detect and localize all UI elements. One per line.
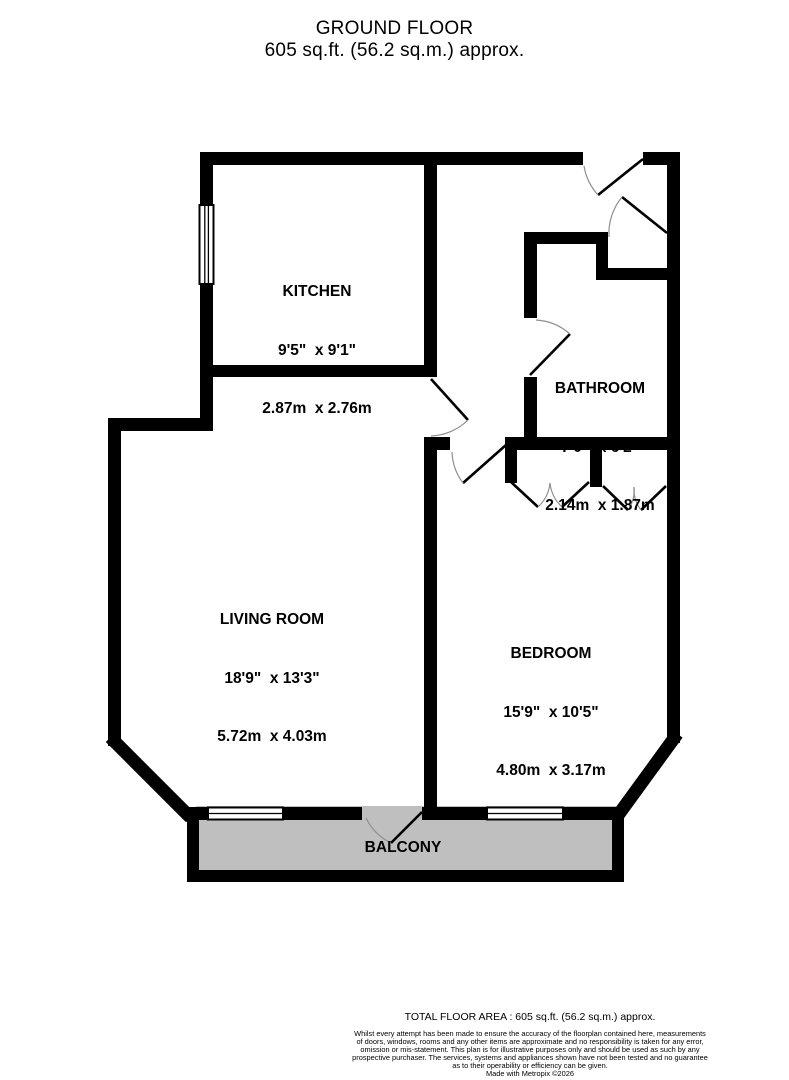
living-room-metric-dims: 5.72m x 4.03m xyxy=(217,727,326,747)
wall-bedroom-top-left-stub xyxy=(424,437,450,450)
wall-kitchen-left-lower xyxy=(200,283,213,431)
kitchen-label: KITCHEN 9'5" x 9'1" 2.87m x 2.76m xyxy=(262,243,371,458)
living-room-hall-door-leaf xyxy=(431,379,468,420)
kitchen-name: KITCHEN xyxy=(262,282,371,302)
bedroom-door-swing-arc xyxy=(452,452,463,483)
wall-wardrobe-stub-left xyxy=(505,437,517,483)
floorplan-canvas xyxy=(0,0,789,1080)
wall-living-bedroom-divider xyxy=(424,437,437,820)
living-room-imperial-dims: 18'9" x 13'3" xyxy=(217,669,326,689)
kitchen-metric-dims: 2.87m x 2.76m xyxy=(262,399,371,419)
bedroom-door xyxy=(452,445,506,483)
wall-balcony-right xyxy=(612,812,624,882)
kitchen-window xyxy=(200,205,214,284)
wall-bathroom-left-upper xyxy=(524,232,537,318)
bedroom-metric-dims: 4.80m x 3.17m xyxy=(496,761,605,781)
entrance-door-swing-arc xyxy=(584,166,598,195)
total-floor-area: TOTAL FLOOR AREA : 605 sq.ft. (56.2 sq.m… xyxy=(290,1011,770,1023)
wall-left xyxy=(108,418,121,746)
wall-right xyxy=(667,152,680,743)
bedroom-name: BEDROOM xyxy=(496,644,605,664)
hall-cupboard-door xyxy=(609,197,667,237)
wall-bedroom-bottom-left xyxy=(422,807,487,820)
living-room-hall-door-swing-arc xyxy=(431,420,468,436)
wall-bathroom-left-lower xyxy=(524,377,537,450)
living-room-hall-door xyxy=(431,379,468,436)
bedroom-door-leaf xyxy=(463,445,506,483)
bedroom-label: BEDROOM 15'9" x 10'5" 4.80m x 3.17m xyxy=(496,605,605,820)
entrance-door-leaf xyxy=(598,159,643,195)
bathroom-metric-dims: 2.14m x 1.87m xyxy=(545,496,654,516)
wall-top xyxy=(200,152,583,165)
wall-cupboard-bottom xyxy=(596,268,667,280)
wall-living-bottom-mid xyxy=(283,807,362,820)
wall-kitchen-right xyxy=(424,152,437,377)
hall-cupboard-door-leaf xyxy=(622,197,667,233)
wall-balcony-bottom xyxy=(187,870,624,882)
wall-bedroom-diagonal xyxy=(619,739,674,814)
hall-cupboard-door-swing-arc xyxy=(609,197,622,237)
wall-left-step xyxy=(108,418,213,431)
bathroom-label: BATHROOM 7'0" x 6'2" 2.14m x 1.87m xyxy=(545,340,654,555)
wall-kitchen-left-upper xyxy=(200,152,213,206)
floor-plan: GROUND FLOOR 605 sq.ft. (56.2 sq.m.) app… xyxy=(0,0,789,1080)
kitchen-window-frame xyxy=(200,205,214,284)
living-room-label: LIVING ROOM 18'9" x 13'3" 5.72m x 4.03m xyxy=(217,571,326,786)
credit-line: Made with Metropix ©2026 xyxy=(290,1070,770,1078)
entrance-door xyxy=(584,159,643,195)
wall-bathroom-top xyxy=(524,232,608,244)
wall-living-diagonal xyxy=(115,742,186,813)
bathroom-imperial-dims: 7'0" x 6'2" xyxy=(545,438,654,458)
bedroom-imperial-dims: 15'9" x 10'5" xyxy=(496,703,605,723)
living-room-window xyxy=(208,808,283,820)
wardrobe1-left-leaf xyxy=(511,482,538,507)
bathroom-door-swing-arc xyxy=(536,320,570,334)
living-room-name: LIVING ROOM xyxy=(217,610,326,630)
bathroom-name: BATHROOM xyxy=(545,379,654,399)
disclaimer: Whilst every attempt has been made to en… xyxy=(290,1030,770,1077)
balcony-label: BALCONY xyxy=(365,839,442,857)
kitchen-imperial-dims: 9'5" x 9'1" xyxy=(262,341,371,361)
